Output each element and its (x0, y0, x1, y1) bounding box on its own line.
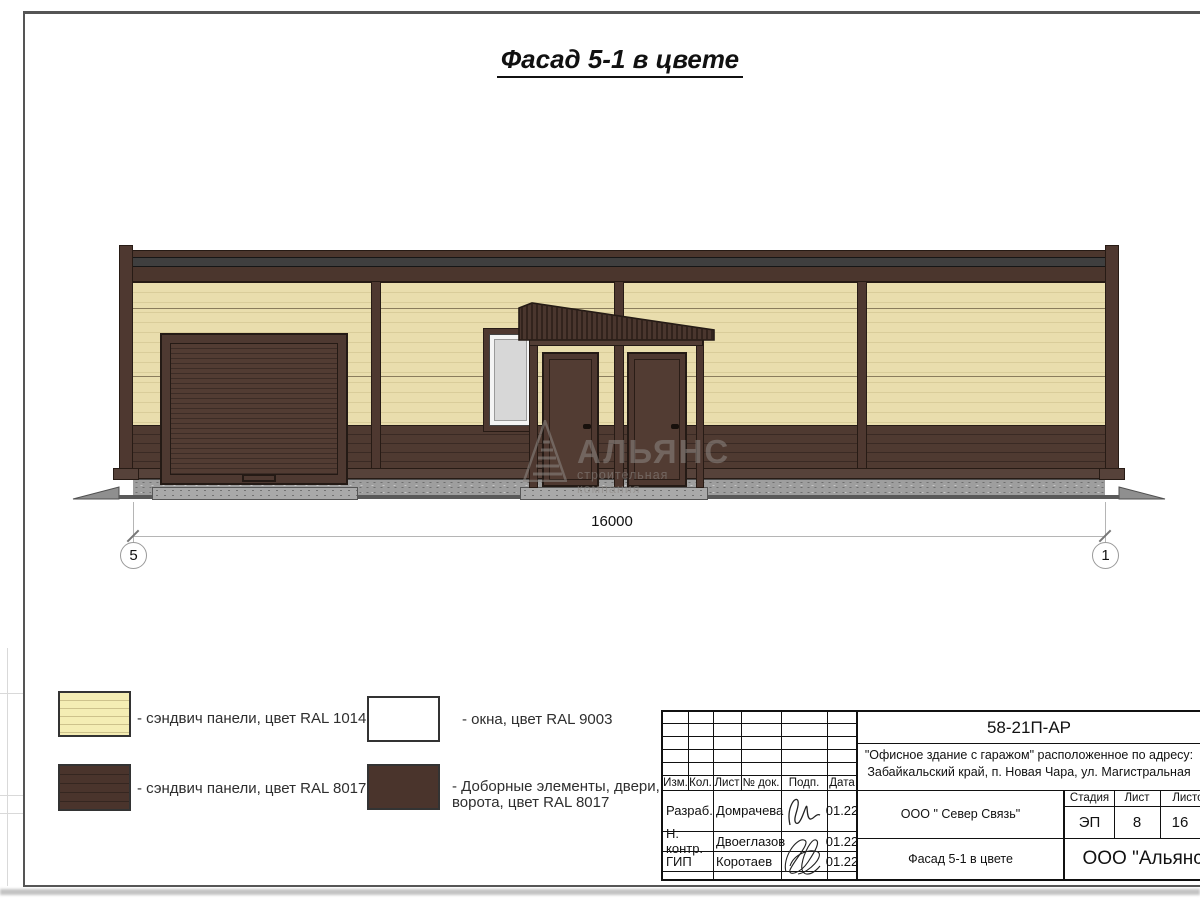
listov-value: 16 (1160, 806, 1200, 838)
project-description: "Офисное здание с гаражом" расположенное… (858, 748, 1200, 779)
col-header-izm: Изм. (663, 775, 688, 790)
col-header-podp: Подп. (781, 775, 827, 790)
sheet-name: Фасад 5-1 в цвете (858, 838, 1063, 879)
row-razrab-date: 01.22 (827, 790, 857, 831)
row-gip-name: Коротаев (716, 851, 781, 871)
row-gip-date: 01.22 (827, 851, 857, 871)
stage-value: ЭП (1065, 806, 1114, 838)
list-value: 8 (1114, 806, 1160, 838)
company-name: ООО "Альянс" (1065, 838, 1200, 879)
col-header-data: Дата (827, 775, 857, 790)
client-name: ООО " Север Связь" (858, 790, 1063, 838)
row-gip-role: ГИП (666, 851, 713, 871)
signature-nkontr-gip (780, 832, 827, 880)
project-description-line2: Забайкальский край, п. Новая Чара, ул. М… (858, 765, 1200, 779)
col-header-ndok: № док. (741, 775, 781, 790)
col-header-list: Лист (713, 775, 741, 790)
title-block: Изм. Кол. Лист № док. Подп. Дата Разраб.… (0, 0, 1200, 900)
listov-label: Листов (1160, 790, 1200, 806)
signature-razrab (782, 793, 827, 831)
doc-number: 58-21П-АР (858, 712, 1200, 743)
row-razrab-role: Разраб. (666, 790, 713, 831)
drawing-sheet: Фасад 5-1 в цвете (0, 0, 1200, 900)
stage-label: Стадия (1065, 790, 1114, 806)
row-nkontr-name: Двоеглазов (716, 831, 781, 851)
col-header-kol: Кол. (688, 775, 713, 790)
row-nkontr-date: 01.22 (827, 831, 857, 851)
list-label: Лист (1114, 790, 1160, 806)
project-description-line1: "Офисное здание с гаражом" расположенное… (858, 748, 1200, 762)
row-razrab-name: Домрачева (716, 790, 781, 831)
row-nkontr-role: Н. контр. (666, 831, 713, 851)
